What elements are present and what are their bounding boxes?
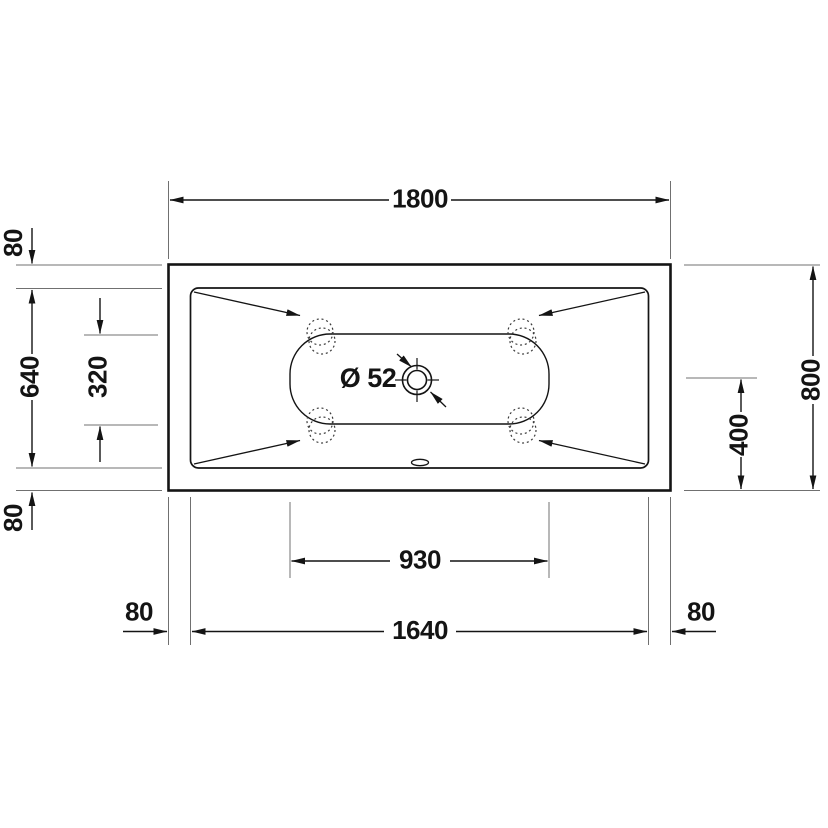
- dim-label-rim-width-bottom: 80: [0, 504, 28, 532]
- dim-label-rim-width-left: 80: [125, 597, 153, 627]
- dim-overall-length: 1800: [169, 181, 671, 259]
- jet-circle-bottom-left-a: [307, 408, 333, 434]
- dim-rim-width-right: 80: [672, 597, 716, 632]
- dim-center-offset: 400: [724, 380, 754, 490]
- dim-jet-row-spacing: 320: [83, 298, 113, 462]
- dim-label-rim-width-top: 80: [0, 229, 28, 257]
- dim-label-inner-width: 640: [15, 356, 45, 398]
- slope-arrow-top-right: [539, 292, 645, 316]
- jet-circle-bottom-right-a: [508, 408, 534, 434]
- overflow-marker: [412, 459, 429, 465]
- dim-label-overall-width: 800: [796, 359, 826, 401]
- dim-label-rim-width-right: 80: [687, 597, 715, 627]
- slope-arrow-bottom-right: [539, 441, 645, 465]
- slope-arrow-bottom-left: [194, 441, 300, 465]
- dim-rim-width-bottom: 80: [0, 493, 32, 532]
- dim-label-overall-length: 1800: [392, 184, 448, 214]
- technical-drawing-canvas: Ø 52 1800 80 640: [0, 0, 828, 828]
- dim-rim-width-left: 80: [123, 597, 167, 632]
- jet-circle-top-left-a: [307, 319, 333, 345]
- drain-diameter-label: Ø 52: [340, 363, 397, 393]
- dimensions: 1800 80 640 320 80: [0, 181, 826, 645]
- drain-leader-arrow-upper: [397, 354, 412, 367]
- jet-circle-top-right-a: [508, 319, 534, 345]
- dim-floor-length: 930: [292, 545, 548, 575]
- bathtub-body: Ø 52: [169, 265, 671, 491]
- tub-outer-outline: [169, 265, 671, 491]
- bathtub-plan-drawing: Ø 52 1800 80 640: [0, 0, 828, 828]
- dim-label-jet-row-spacing: 320: [83, 356, 113, 398]
- slope-arrow-top-left: [194, 292, 300, 316]
- dim-label-center-offset: 400: [724, 414, 754, 456]
- basin-floor-outline: [290, 334, 549, 424]
- dim-inner-length: 1640: [192, 615, 647, 645]
- dim-inner-width: 640: [15, 290, 45, 467]
- dim-label-floor-length: 930: [399, 545, 441, 575]
- drain-inner-circle: [408, 371, 427, 390]
- tub-inner-rim: [191, 288, 649, 468]
- dim-overall-width: 800: [796, 267, 826, 490]
- drain-leader-arrow-lower: [431, 392, 447, 407]
- dim-rim-width-top: 80: [0, 228, 32, 264]
- dim-label-inner-length: 1640: [392, 615, 448, 645]
- jet-circle-top-left-b: [309, 328, 335, 354]
- drain: Ø 52: [340, 354, 446, 407]
